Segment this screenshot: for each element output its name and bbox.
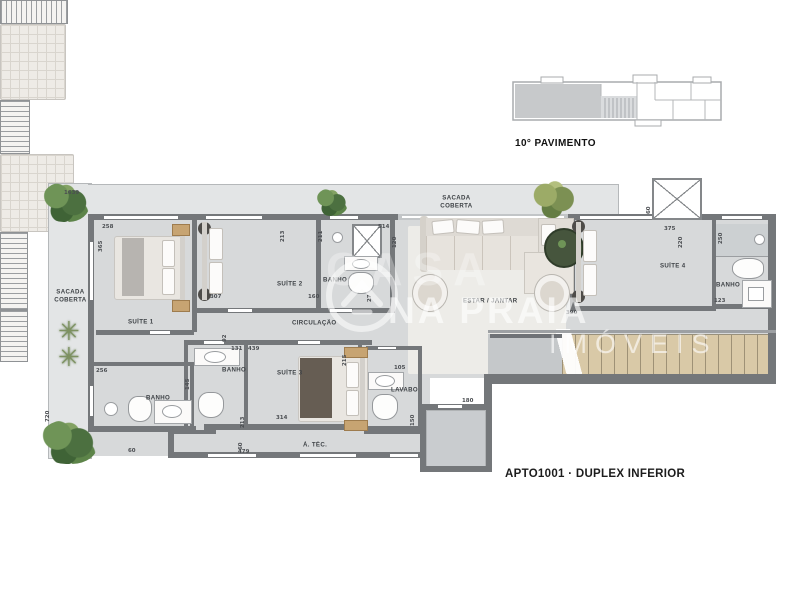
key-plan: 10° PAVIMENTO	[505, 70, 733, 136]
window	[390, 454, 418, 457]
room-label-suite1: SUÍTE 1	[128, 318, 154, 325]
headboard	[576, 222, 581, 302]
dim-label: 479	[238, 448, 249, 454]
toilet-icon	[348, 272, 374, 294]
wall	[192, 214, 197, 332]
wardrobe-icon	[0, 232, 28, 310]
dim-label: 180	[462, 397, 473, 403]
wall	[484, 374, 776, 384]
toilet-icon	[198, 392, 224, 418]
wall	[244, 344, 248, 428]
dim-label: 215	[341, 355, 347, 366]
room-label-banho2: BANHO	[323, 276, 347, 283]
palm-plant-icon: ✳	[58, 344, 80, 370]
wall	[94, 362, 194, 366]
dim-label: 250	[717, 233, 723, 244]
wall	[570, 306, 716, 311]
door-opening	[228, 309, 252, 312]
door-opening	[330, 309, 352, 312]
room-label-banho4: BANHO	[716, 281, 740, 288]
wall	[366, 426, 422, 430]
dim-label: 258	[102, 223, 113, 229]
wall	[488, 330, 776, 333]
room-label-banho3: BANHO	[222, 366, 246, 373]
stair-rail	[490, 334, 562, 338]
headboard	[180, 233, 185, 301]
room-label-suite3: SUÍTE 3	[277, 369, 303, 376]
wall	[420, 404, 426, 472]
pillow	[162, 268, 175, 295]
dim-label: 131	[231, 345, 242, 351]
elevator-shaft-icon	[652, 178, 702, 220]
headboard	[360, 354, 365, 422]
bed	[0, 24, 66, 100]
dim-label: 60	[645, 206, 651, 214]
door-opening	[378, 347, 396, 349]
toilet-icon	[732, 258, 764, 279]
dim-label: 256	[96, 367, 107, 373]
shower-head-icon	[754, 234, 765, 245]
room-label-suite2: SUÍTE 2	[277, 280, 303, 287]
floor-plan-image: 10° PAVIMENTO	[0, 0, 800, 600]
key-plan-label: 10° PAVIMENTO	[515, 138, 596, 149]
nightstand	[344, 347, 368, 358]
plant-icon	[42, 182, 90, 222]
dim-label: 213	[279, 231, 285, 242]
shower-drain-icon	[104, 402, 118, 416]
dim-label: 145	[184, 379, 190, 390]
pillow	[431, 219, 454, 235]
wall	[96, 330, 194, 335]
bed-throw	[300, 358, 332, 418]
plan-title: APTO1001 · DUPLEX INFERIOR	[505, 468, 685, 480]
dim-label: 92	[221, 334, 227, 342]
pillow	[455, 219, 480, 235]
dim-label: 120	[391, 237, 397, 248]
palm-plant-icon: ✳	[58, 318, 80, 344]
toilet-icon	[372, 394, 398, 420]
wall	[390, 214, 395, 312]
headboard	[202, 222, 207, 300]
plant-icon	[530, 180, 578, 218]
bed-throw	[122, 238, 144, 296]
window	[206, 216, 262, 219]
window	[300, 454, 356, 457]
sink-basin-icon	[352, 259, 370, 269]
wall	[204, 424, 366, 430]
nightstand	[172, 224, 190, 236]
wall	[196, 308, 395, 313]
dim-label: 307	[210, 293, 221, 299]
dim-label: 213	[239, 417, 245, 428]
wall	[168, 430, 216, 434]
pillow	[583, 264, 597, 296]
dim-label: 375	[664, 225, 675, 231]
pillow	[482, 219, 505, 235]
entry-hall-floor	[426, 410, 486, 468]
pillow	[583, 230, 597, 262]
door-opening	[298, 341, 320, 344]
room-label-estar: ESTAR / JANTAR	[463, 297, 518, 304]
sink-basin-icon	[204, 351, 226, 363]
dim-label: 720	[44, 411, 50, 422]
dim-label: 365	[97, 241, 103, 252]
door-opening	[438, 405, 462, 408]
wardrobe-icon	[0, 310, 28, 362]
window	[90, 386, 93, 416]
staircase	[562, 334, 774, 377]
dim-label: 27	[366, 294, 372, 302]
dim-label: 211	[317, 231, 323, 242]
shower-head-icon	[332, 232, 343, 243]
sink-basin-icon	[748, 287, 764, 301]
dim-label: 514	[378, 223, 389, 229]
dim-label: 160	[308, 293, 319, 299]
plant-icon	[40, 420, 98, 464]
pillow	[162, 240, 175, 267]
room-label-suite4: SUÍTE 4	[660, 262, 686, 269]
room-label-lavabo: LAVABO	[391, 386, 418, 393]
window	[104, 216, 178, 219]
wall	[420, 466, 492, 472]
room-label-sacada-left: SACADA COBERTA	[50, 288, 91, 304]
pillow	[346, 390, 359, 416]
room-label-sacada-top: SACADA COBERTA	[436, 194, 477, 210]
nightstand	[344, 420, 368, 431]
window	[580, 216, 656, 219]
room-label-banho1: BANHO	[146, 394, 170, 401]
pillow	[209, 228, 223, 260]
door-opening	[150, 331, 170, 334]
room-label-atec: Á. TÉC.	[303, 441, 327, 448]
pillow	[209, 262, 223, 294]
room-label-circulacao: CIRCULAÇÃO	[292, 319, 337, 326]
key-plan-drawing	[505, 70, 733, 132]
stair-landing	[488, 334, 562, 376]
coffee-table-plant-icon	[558, 240, 566, 248]
dim-label: 314	[276, 414, 287, 420]
dim-label: 123	[714, 297, 725, 303]
dim-label: 150	[409, 415, 415, 426]
sofa-seat	[426, 236, 538, 270]
wardrobe-icon	[0, 0, 68, 24]
dim-label: 439	[248, 345, 259, 351]
plant-icon	[316, 188, 348, 216]
dim-label: 390	[566, 309, 577, 315]
wardrobe-icon	[0, 100, 30, 154]
nightstand	[172, 300, 190, 312]
dim-label: 105	[394, 364, 405, 370]
dim-label: 220	[677, 237, 683, 248]
dim-label: 60	[128, 447, 136, 453]
window	[722, 216, 762, 219]
pillow	[346, 362, 359, 388]
dim-label: 1639	[64, 189, 79, 195]
sink-basin-icon	[162, 405, 182, 418]
